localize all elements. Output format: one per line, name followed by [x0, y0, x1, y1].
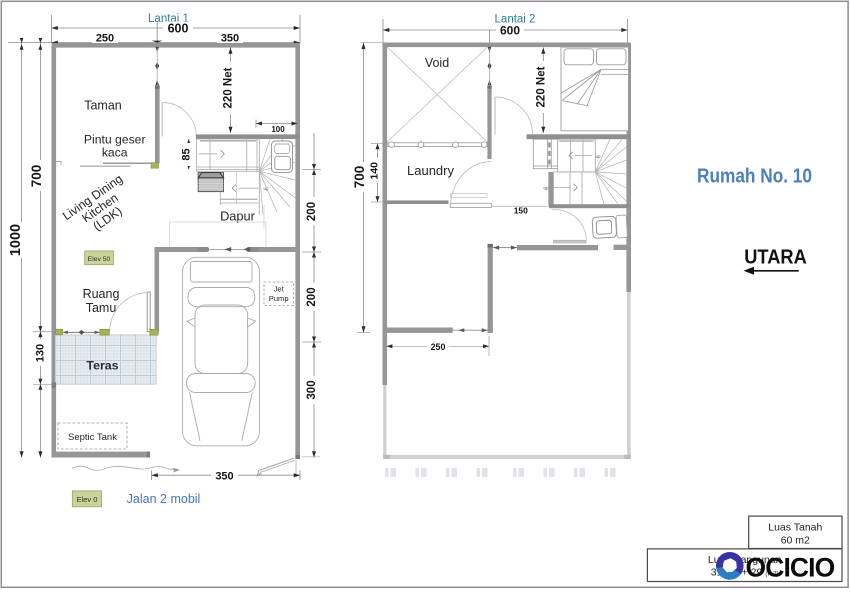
svg-text:600: 600	[168, 21, 189, 35]
svg-text:350: 350	[221, 33, 239, 45]
svg-text:130: 130	[35, 344, 47, 362]
svg-text:Luas Tanah: Luas Tanah	[768, 522, 822, 534]
svg-text:Pintu geser: Pintu geser	[84, 133, 146, 147]
svg-text:Septic Tank: Septic Tank	[68, 432, 117, 443]
svg-text:Elev 50: Elev 50	[88, 256, 111, 263]
svg-text:UTARA: UTARA	[744, 247, 807, 269]
svg-text:Void: Void	[425, 56, 449, 70]
svg-text:220 Net: 220 Net	[223, 67, 235, 108]
svg-text:Jalan 2 mobil: Jalan 2 mobil	[127, 492, 201, 506]
svg-text:1000: 1000	[8, 224, 24, 256]
svg-text:700: 700	[352, 166, 367, 189]
svg-text:250: 250	[96, 33, 114, 45]
svg-text:up: up	[544, 186, 550, 191]
svg-text:600: 600	[500, 24, 520, 38]
svg-text:250: 250	[431, 342, 446, 352]
svg-text:350: 350	[215, 471, 233, 483]
svg-text:Teras: Teras	[86, 359, 118, 373]
svg-text:200: 200	[306, 287, 318, 306]
svg-text:300: 300	[306, 380, 318, 399]
svg-text:up: up	[596, 154, 602, 159]
svg-text:150: 150	[514, 205, 528, 215]
svg-text:Elev 0: Elev 0	[77, 495, 98, 504]
svg-text:Jet: Jet	[274, 285, 285, 294]
svg-text:kaca: kaca	[102, 146, 128, 160]
svg-text:200: 200	[306, 202, 318, 221]
svg-text:Dapur: Dapur	[220, 209, 256, 224]
svg-text:Pump: Pump	[269, 294, 289, 303]
svg-text:220 Net: 220 Net	[535, 66, 547, 107]
svg-text:Taman: Taman	[84, 99, 122, 113]
svg-text:60 m2: 60 m2	[781, 535, 810, 547]
svg-text:100: 100	[271, 125, 285, 134]
svg-text:Rumah No. 10: Rumah No. 10	[697, 165, 812, 188]
svg-text:700: 700	[29, 165, 44, 188]
svg-text:140: 140	[369, 162, 381, 180]
svg-text:Tamu: Tamu	[86, 301, 117, 315]
svg-text:Laundry: Laundry	[407, 163, 454, 178]
svg-text:OCICIO: OCICIO	[746, 552, 835, 582]
svg-text:85: 85	[181, 148, 193, 160]
svg-text:Ruang: Ruang	[83, 287, 120, 301]
